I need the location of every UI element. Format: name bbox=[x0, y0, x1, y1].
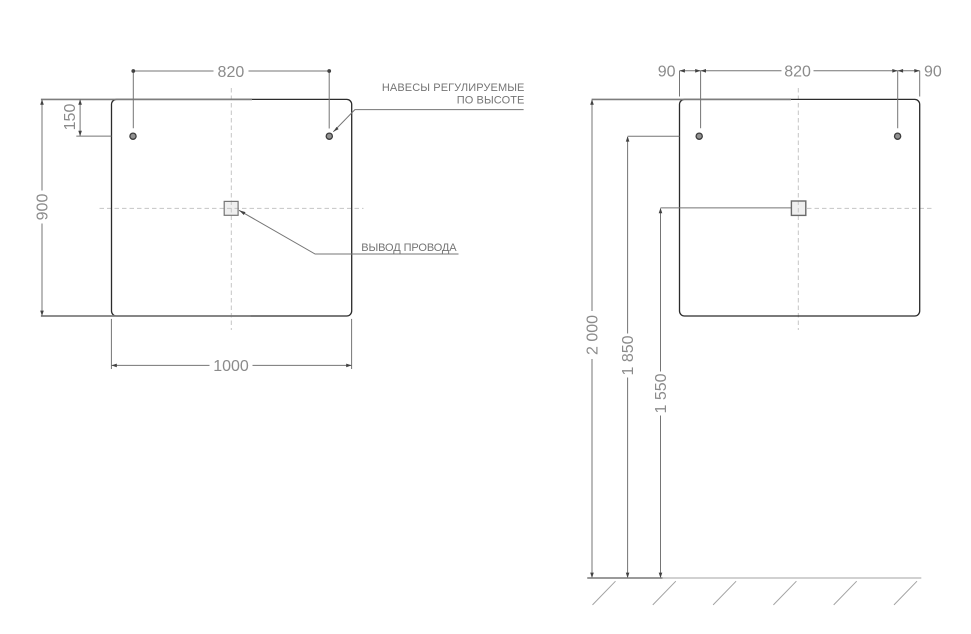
svg-text:ВЫВОД ПРОВОДА: ВЫВОД ПРОВОДА bbox=[361, 242, 457, 254]
svg-text:1 550: 1 550 bbox=[653, 373, 670, 413]
svg-text:150: 150 bbox=[62, 104, 79, 131]
svg-text:820: 820 bbox=[218, 64, 245, 81]
svg-text:2 000: 2 000 bbox=[585, 315, 602, 355]
svg-text:НАВЕСЫ РЕГУЛИРУЕМЫЕ: НАВЕСЫ РЕГУЛИРУЕМЫЕ bbox=[382, 82, 525, 94]
svg-text:ПО ВЫСОТЕ: ПО ВЫСОТЕ bbox=[457, 95, 525, 107]
svg-text:900: 900 bbox=[34, 194, 51, 221]
svg-text:1 850: 1 850 bbox=[620, 335, 637, 375]
svg-text:820: 820 bbox=[784, 64, 811, 81]
svg-text:90: 90 bbox=[658, 64, 676, 81]
svg-text:90: 90 bbox=[924, 64, 942, 81]
svg-text:1000: 1000 bbox=[213, 358, 249, 375]
